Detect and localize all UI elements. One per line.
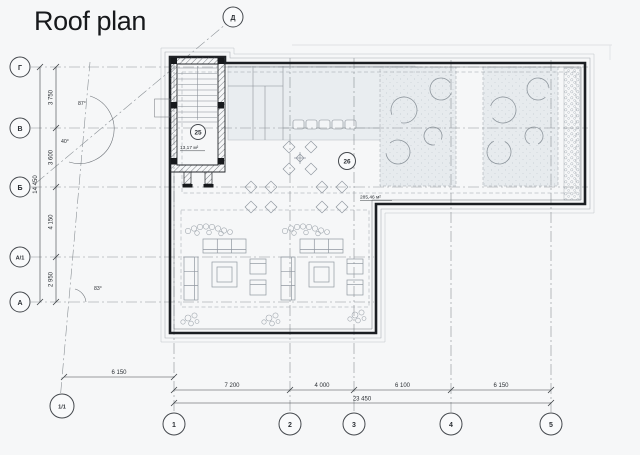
wall-stub [205,172,212,184]
drawing-sheet: 25 13,17 м² 26 285,46 м² 3 750 [0,0,640,455]
dim-bottom-3: 6 100 [395,383,411,389]
svg-text:Д: Д [231,15,236,22]
angle-labels: 87° 40° 83° [61,101,102,292]
dim-bottom-total: 23 450 [353,397,372,403]
svg-text:1: 1 [172,422,176,429]
svg-text:Г: Г [18,65,22,72]
angle-top: 87° [78,101,86,107]
page-title: Roof plan [34,6,146,37]
bar-stools [293,120,356,129]
room-number-25: 25 [194,129,202,136]
svg-text:4: 4 [449,422,453,429]
lounge-group-1 [184,239,266,300]
svg-text:1/1: 1/1 [58,404,66,410]
room-number-26: 26 [343,159,351,166]
roof-plan-drawing: 25 13,17 м² 26 285,46 м² 3 750 [0,0,640,455]
dim-bottom-2: 4 000 [314,383,330,389]
dim-bottom-1: 7 200 [224,383,240,389]
svg-text:А: А [17,300,22,307]
plant-cluster [181,313,199,326]
dim-bottom-offset: 6 150 [111,370,127,376]
hedge-row-1 [185,224,232,236]
svg-text:2: 2 [288,422,292,429]
wall-stub [184,172,191,184]
planting-panel-right [483,67,558,186]
dim-bottom-4: 6 150 [493,383,509,389]
chair-cluster-center [283,141,317,175]
svg-text:В: В [17,126,22,133]
dim-left-4: 2 950 [49,271,55,287]
roof-edge-dashed-wing [181,210,369,307]
chair-cluster-right [316,181,348,213]
dim-left-1: 3 750 [49,89,55,105]
lounge-group-2 [281,239,363,300]
pebble-strip [564,68,580,200]
svg-text:А/1: А/1 [16,255,25,261]
inclined-axis-1-1 [59,62,90,412]
svg-text:Б: Б [17,185,22,192]
svg-text:5: 5 [549,422,553,429]
angle-bottom: 83° [94,286,102,292]
planting-panel-left [380,67,456,186]
dim-left-2: 3 600 [49,149,55,165]
room-area-25: 13,17 м² [180,145,199,151]
hedge-row-2 [282,224,329,236]
room-area-26: 285,46 м² [360,195,381,201]
angle-arcs [69,96,114,302]
angle-middle: 40° [61,139,69,145]
side-ledge [155,99,171,117]
plant-cluster [348,310,366,323]
dim-left-total: 14 450 [33,175,39,194]
svg-text:3: 3 [352,422,356,429]
chair-cluster-left [245,181,277,213]
dim-left-3: 4 150 [49,214,55,230]
stair-treads [177,66,218,122]
plant-cluster [262,313,280,326]
